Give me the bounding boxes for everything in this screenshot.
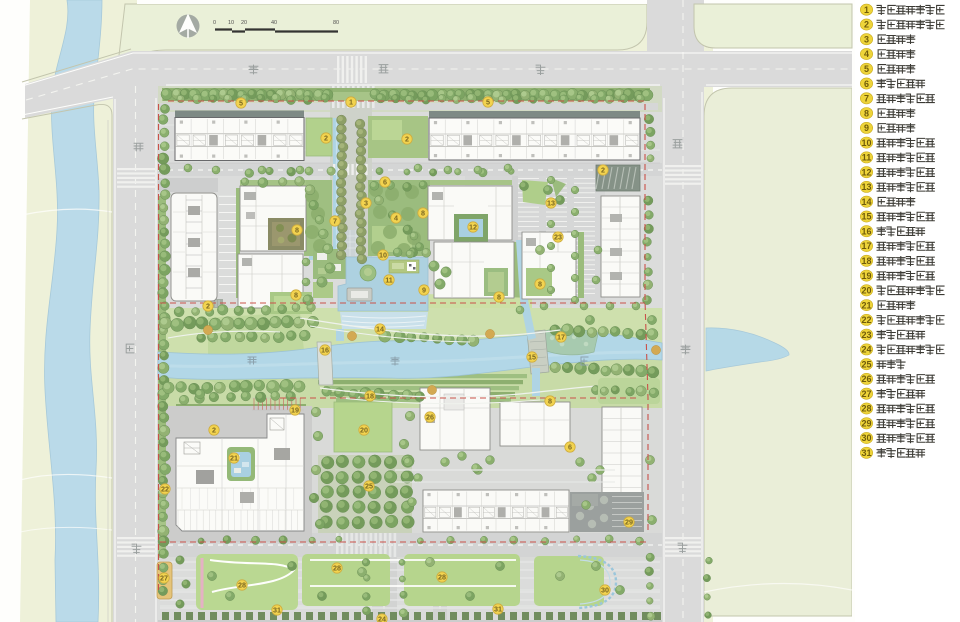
svg-text:2: 2: [864, 20, 869, 30]
svg-text:14: 14: [861, 197, 871, 207]
svg-text:25: 25: [861, 359, 871, 369]
svg-text:1: 1: [864, 5, 869, 15]
svg-text:9: 9: [864, 123, 869, 133]
svg-text:10: 10: [861, 138, 871, 148]
svg-text:8: 8: [864, 108, 869, 118]
svg-text:12: 12: [861, 167, 871, 177]
svg-text:15: 15: [861, 212, 871, 222]
svg-text:28: 28: [861, 404, 871, 414]
svg-text:19: 19: [861, 271, 871, 281]
svg-text:13: 13: [861, 182, 871, 192]
svg-text:11: 11: [862, 153, 872, 163]
svg-text:3: 3: [864, 34, 869, 44]
svg-text:22: 22: [861, 315, 871, 325]
svg-text:24: 24: [861, 345, 871, 355]
svg-text:27: 27: [861, 389, 871, 399]
svg-text:26: 26: [861, 374, 871, 384]
svg-text:31: 31: [861, 448, 871, 458]
svg-text:20: 20: [861, 286, 871, 296]
svg-text:16: 16: [861, 226, 871, 236]
svg-text:5: 5: [864, 64, 869, 74]
svg-text:17: 17: [861, 241, 871, 251]
svg-text:4: 4: [864, 49, 869, 59]
svg-text:18: 18: [861, 256, 871, 266]
svg-text:30: 30: [861, 433, 871, 443]
svg-text:29: 29: [861, 419, 871, 429]
svg-text:21: 21: [861, 300, 871, 310]
svg-text:7: 7: [864, 94, 869, 104]
svg-text:6: 6: [864, 79, 869, 89]
svg-text:23: 23: [861, 330, 871, 340]
